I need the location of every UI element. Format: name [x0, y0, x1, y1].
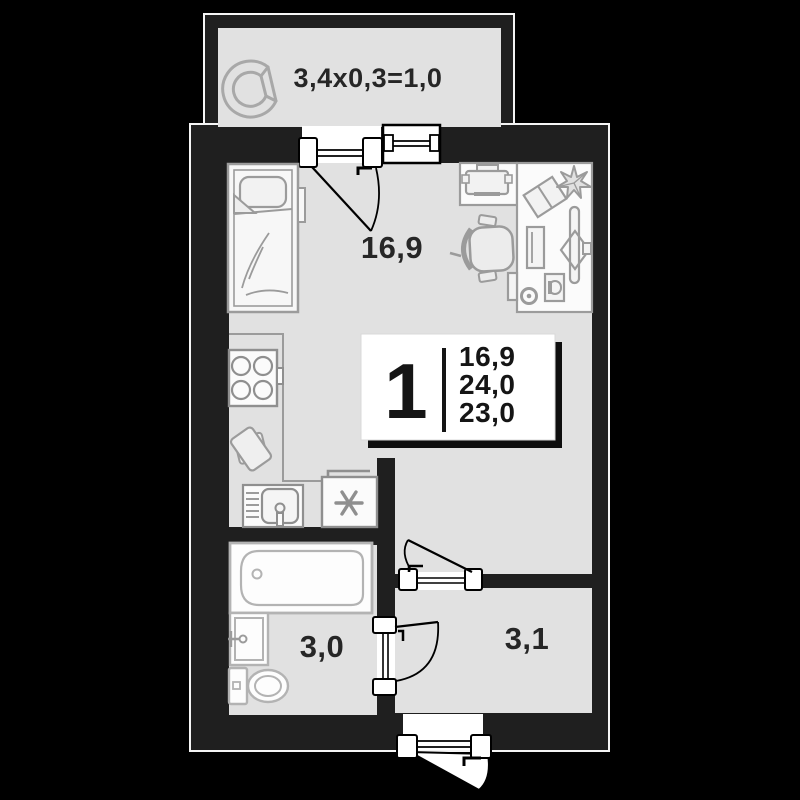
washbasin-icon [228, 613, 268, 665]
nightstand-icon [298, 188, 305, 222]
pc-tower-icon [508, 273, 517, 300]
door-jamb [399, 569, 417, 590]
keyboard-icon [527, 227, 544, 268]
badge-area-alt: 23,0 [459, 397, 516, 428]
door-jamb [465, 569, 482, 590]
door-jamb [299, 138, 317, 167]
door-jamb [363, 138, 382, 167]
window-icon [383, 125, 440, 163]
pillow [240, 177, 286, 207]
floor-plan: 1 16,9 24,0 23,0 3,4x0,3=1,0 16,9 3,0 3,… [0, 0, 800, 800]
toilet-icon [229, 668, 288, 704]
bathtub-icon [230, 543, 372, 613]
door-jamb [471, 735, 491, 758]
hallway-area-label: 3,1 [505, 621, 550, 656]
badge-living-area: 16,9 [459, 341, 516, 372]
area-badge: 1 16,9 24,0 23,0 [361, 334, 562, 448]
badge-total-area: 24,0 [459, 369, 516, 400]
bed-icon [228, 164, 298, 312]
notepad-icon [545, 274, 564, 301]
kitchen-sink-icon [243, 485, 303, 527]
floor-plan-canvas: 1 16,9 24,0 23,0 3,4x0,3=1,0 16,9 3,0 3,… [0, 0, 800, 800]
badge-room-count: 1 [384, 347, 426, 435]
living-room-area-label: 16,9 [361, 230, 423, 265]
bathroom-area-label: 3,0 [300, 629, 345, 664]
fridge-icon [322, 471, 377, 527]
stove-icon [229, 350, 283, 406]
badge-divider [442, 348, 446, 432]
door-jamb [373, 679, 396, 695]
door-jamb [373, 617, 396, 633]
door-jamb [397, 735, 417, 758]
balcony-dimensions-label: 3,4x0,3=1,0 [294, 63, 443, 93]
hallway-floor [395, 588, 592, 713]
